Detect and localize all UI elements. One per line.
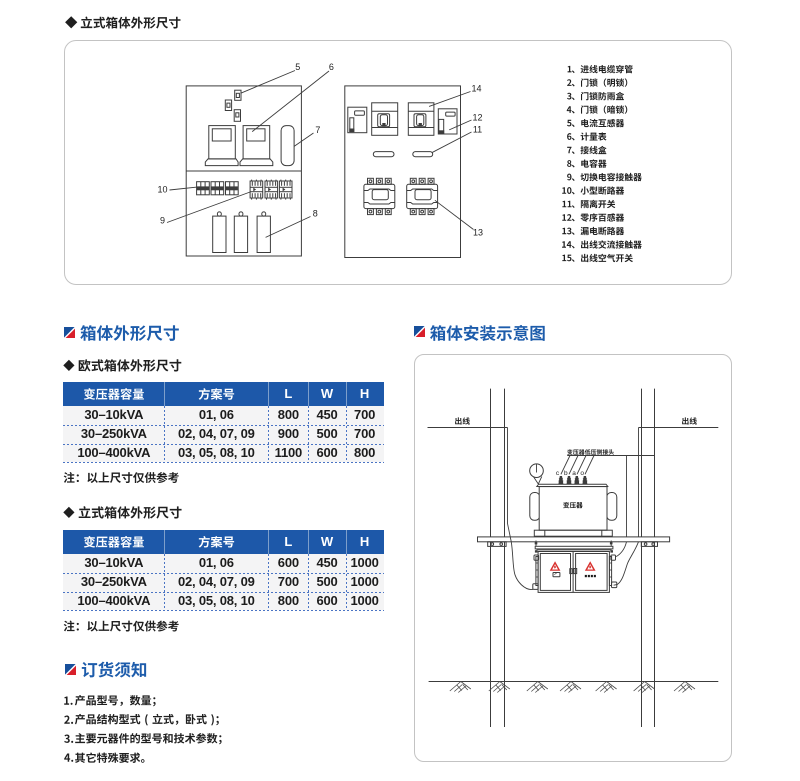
svg-text:6: 6 [329,62,334,72]
svg-text:8: 8 [313,209,318,219]
svg-text:10: 10 [157,185,167,195]
svg-text:b: b [564,470,568,477]
svg-text:12: 12 [472,113,482,123]
svg-text:11: 11 [473,125,482,135]
svg-text:o: o [580,470,584,477]
svg-text:c: c [556,470,560,477]
svg-text:13: 13 [473,228,483,238]
svg-text:a: a [572,470,576,477]
svg-text:5: 5 [295,62,300,72]
svg-text:9: 9 [160,216,165,226]
svg-text:7: 7 [315,125,320,135]
svg-text:14: 14 [471,84,481,94]
